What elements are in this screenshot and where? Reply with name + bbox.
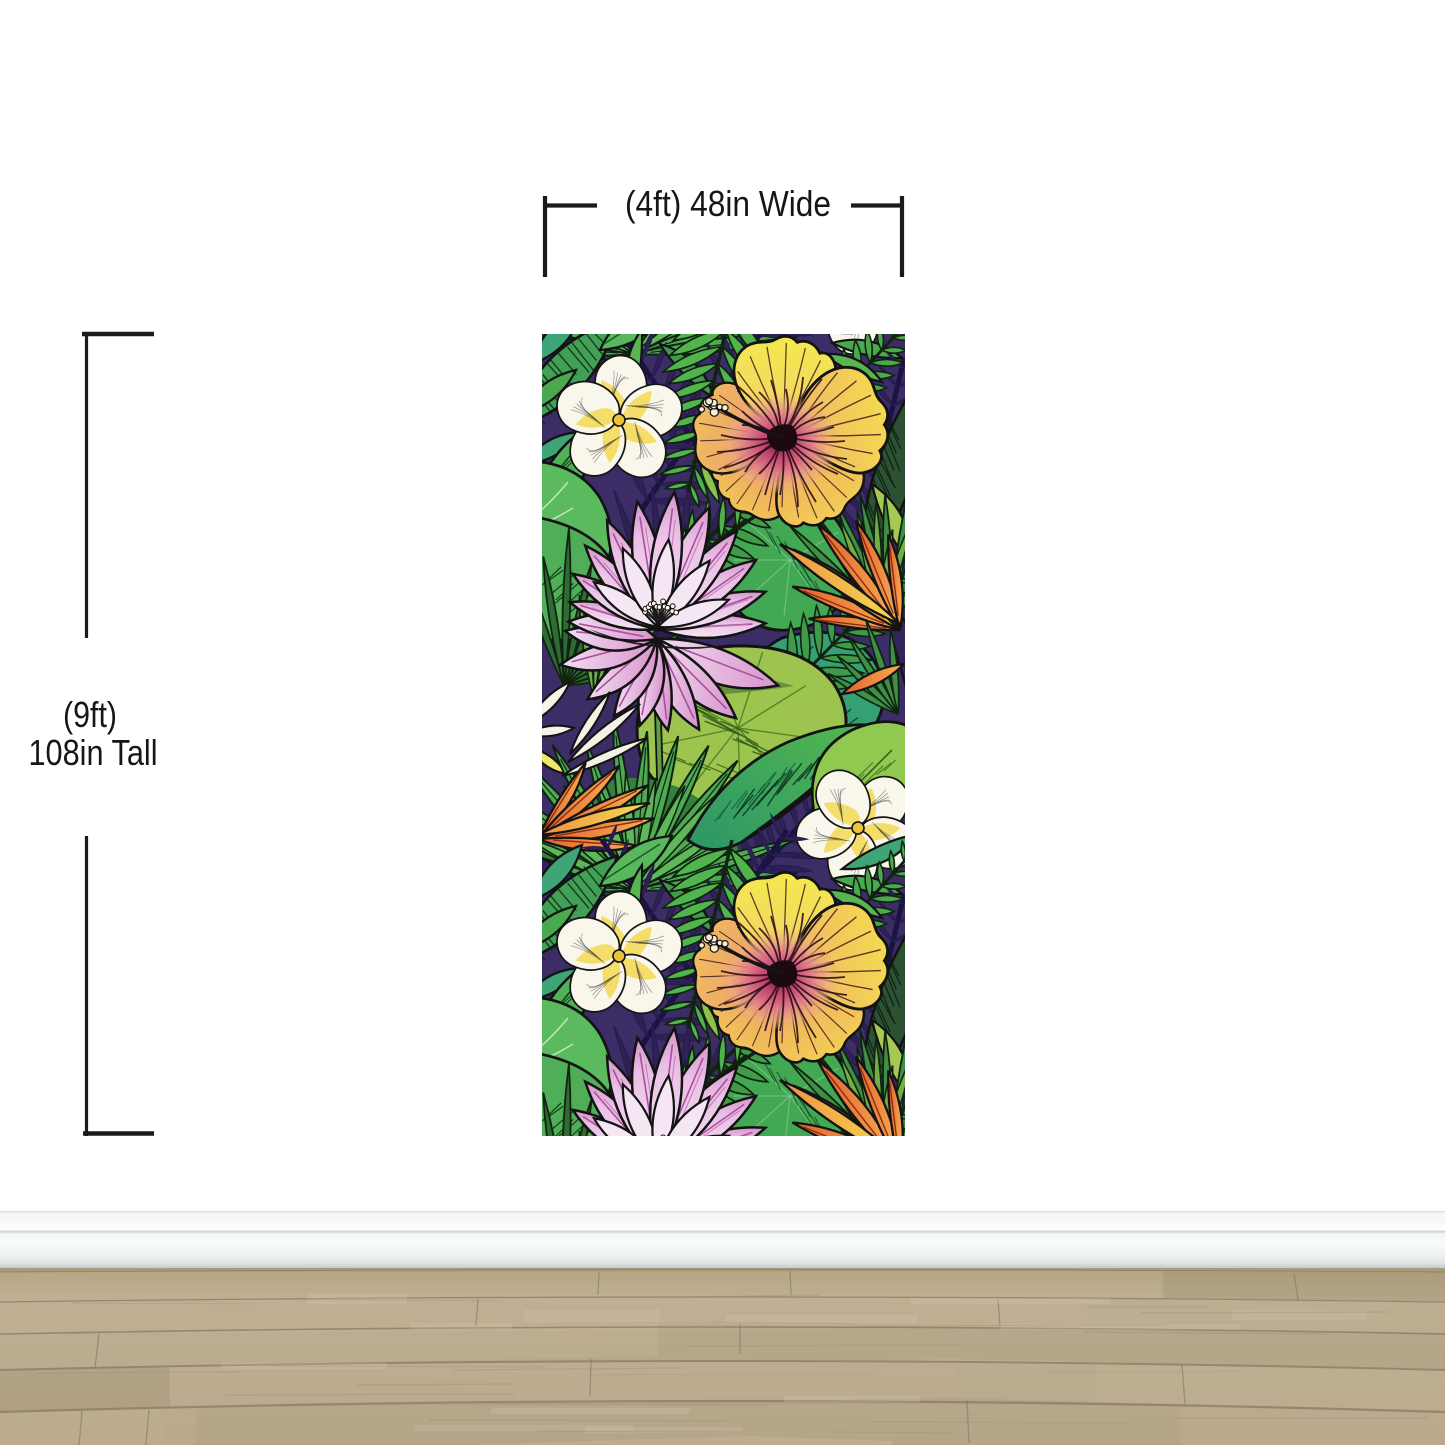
svg-text:(9ft): (9ft) [63,694,117,735]
svg-text:(4ft) 48in Wide: (4ft) 48in Wide [625,183,831,224]
svg-text:108in Tall: 108in Tall [29,732,158,773]
